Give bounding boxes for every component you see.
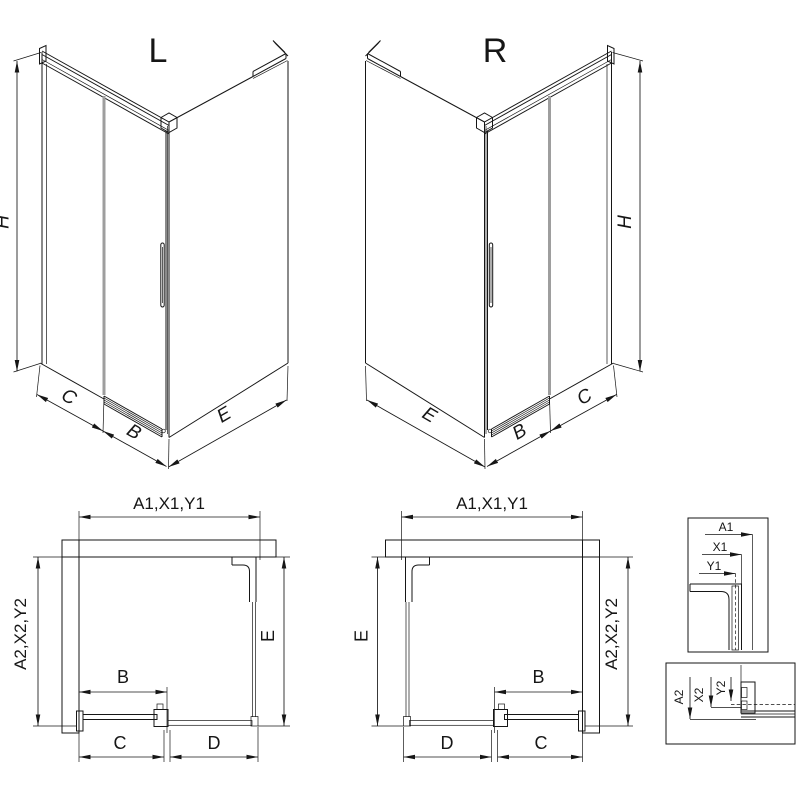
plan-view-right: A1,X1,Y1 E A2,X2,Y2 B bbox=[352, 494, 634, 762]
label-y1: Y1 bbox=[707, 559, 722, 573]
detail-bottom-rail-section bbox=[741, 665, 795, 717]
iso-l-side-panel bbox=[169, 41, 288, 364]
plan-l-wall-left bbox=[62, 540, 79, 733]
iso-r-wall-profile-arm bbox=[368, 54, 401, 77]
label-c-plan-right: C bbox=[535, 733, 548, 753]
iso-view-right: R bbox=[366, 32, 644, 469]
iso-r-wall-profile-leg bbox=[366, 41, 381, 57]
label-a2x2y2-left: A2,X2,Y2 bbox=[11, 598, 30, 670]
iso-l-dim-height: H bbox=[0, 53, 41, 373]
label-e-l: E bbox=[214, 403, 236, 428]
plan-l-door-bracket bbox=[154, 710, 168, 727]
iso-l-wall-profile-arm bbox=[253, 54, 286, 77]
iso-r-dim-height: H bbox=[613, 53, 644, 373]
plan-r-dim-a1: A1,X1,Y1 bbox=[402, 494, 583, 560]
iso-l-dims-bottom: C B E bbox=[37, 366, 289, 470]
label-b-r: B bbox=[509, 420, 531, 445]
label-d-plan-right: D bbox=[441, 733, 454, 753]
label-a2x2y2-right: A2,X2,Y2 bbox=[602, 598, 621, 670]
plan-r-corner-profile bbox=[404, 557, 430, 726]
plan-r-fixed-glass-d bbox=[410, 721, 494, 726]
label-height-l: H bbox=[0, 215, 14, 229]
plan-l-corner-profile bbox=[232, 557, 258, 726]
label-e-r: E bbox=[419, 403, 441, 428]
plan-l-dim-a2: A2,X2,Y2 bbox=[11, 557, 77, 726]
plan-r-dim-a2: A2,X2,Y2 bbox=[585, 557, 634, 726]
plan-r-door-assembly bbox=[410, 704, 586, 731]
label-x2: X2 bbox=[692, 687, 706, 702]
plan-view-left: A1,X1,Y1 A2,X2,Y2 E bbox=[11, 494, 290, 762]
plan-r-door-glass bbox=[505, 715, 579, 720]
iso-l-door-wall bbox=[40, 46, 178, 438]
plan-l-wall-top bbox=[62, 540, 276, 557]
plan-l-dim-a1: A1,X1,Y1 bbox=[79, 494, 260, 560]
label-d-plan-left: D bbox=[208, 733, 221, 753]
plan-r-dims-bottom: D C bbox=[404, 727, 583, 762]
iso-r-door-wall bbox=[477, 46, 615, 438]
plan-r-wall-right bbox=[583, 540, 600, 733]
detail-bottom-profile: A2 X2 Y2 bbox=[666, 663, 795, 744]
label-e-plan-right: E bbox=[352, 630, 372, 642]
label-b-l: B bbox=[123, 420, 145, 445]
plan-l-door-glass bbox=[83, 715, 157, 720]
plan-l-wall-profile bbox=[77, 711, 84, 731]
label-b-plan-left: B bbox=[117, 667, 129, 687]
plan-r-wall-profile bbox=[579, 711, 586, 731]
iso-view-left: L bbox=[0, 32, 288, 469]
iso-r-dims-bottom: C B E bbox=[366, 366, 618, 470]
variant-label-right: R bbox=[483, 32, 508, 70]
iso-l-wall-profile-leg bbox=[273, 41, 288, 57]
shower-enclosure-dimension-drawing: L bbox=[0, 0, 800, 800]
detail-glass-section bbox=[732, 586, 739, 650]
label-x1: X1 bbox=[713, 540, 728, 554]
plan-l-dims-bottom: C D bbox=[79, 727, 258, 762]
plan-l-dim-e: E bbox=[256, 557, 290, 726]
variant-label-left: L bbox=[149, 32, 168, 70]
label-c-r: C bbox=[574, 385, 597, 410]
detail-wall-profile bbox=[690, 584, 742, 650]
plan-l-fixed-glass-d bbox=[168, 721, 252, 726]
label-c-l: C bbox=[58, 385, 81, 410]
label-e-plan-left: E bbox=[258, 630, 278, 642]
plan-r-door-bracket bbox=[494, 710, 508, 727]
label-a1: A1 bbox=[719, 520, 734, 534]
label-b-plan-right: B bbox=[532, 667, 544, 687]
label-a1x1y1-left: A1,X1,Y1 bbox=[133, 494, 205, 513]
label-a1x1y1-right: A1,X1,Y1 bbox=[456, 494, 528, 513]
label-y2: Y2 bbox=[714, 680, 728, 695]
drawing-page: L bbox=[0, 0, 800, 800]
label-c-plan-left: C bbox=[114, 733, 127, 753]
detail-top-profile: A1 X1 Y1 bbox=[688, 518, 768, 652]
plan-r-dim-e: E bbox=[352, 557, 406, 726]
plan-l-door-assembly bbox=[77, 704, 253, 731]
label-a2: A2 bbox=[672, 689, 686, 704]
label-height-r: H bbox=[615, 215, 636, 229]
iso-r-side-panel bbox=[366, 41, 485, 364]
plan-r-wall-top bbox=[386, 540, 600, 557]
